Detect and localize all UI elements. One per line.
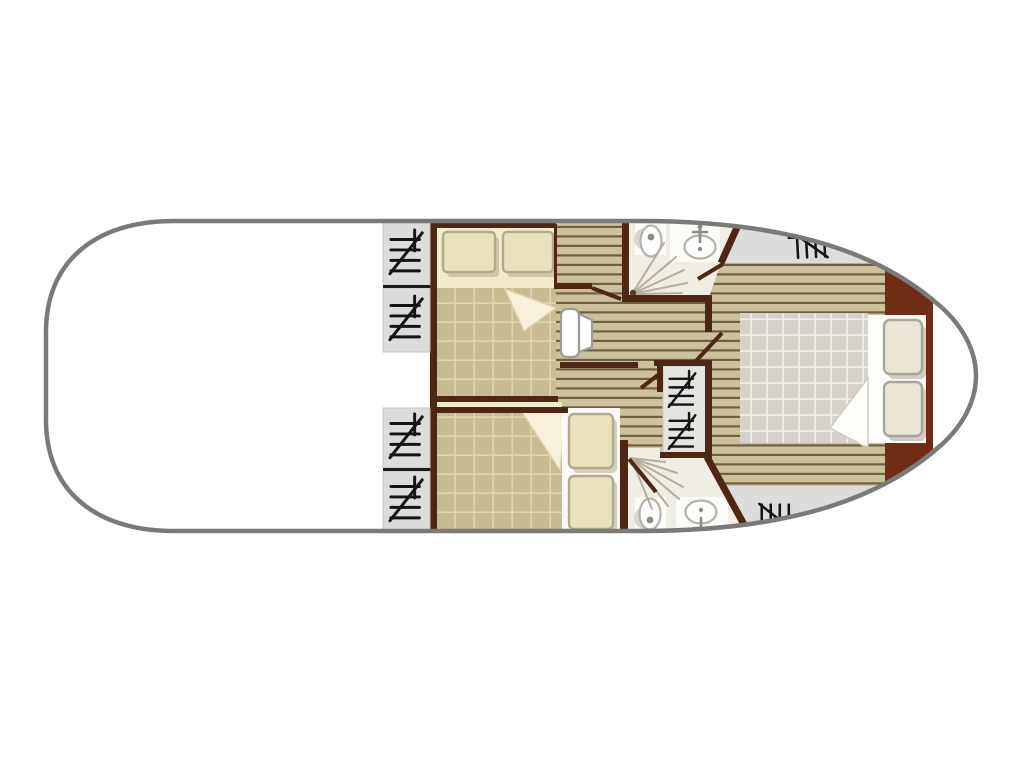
- pillow: [569, 414, 613, 468]
- wall-cabin-left: [430, 221, 437, 531]
- wall: [654, 452, 712, 459]
- bow-tip: [933, 221, 995, 531]
- wall: [430, 396, 558, 402]
- wall: [622, 221, 629, 302]
- divider: [383, 468, 430, 471]
- wall: [620, 440, 628, 531]
- pillow: [503, 232, 553, 272]
- floor-plan-canvas: [0, 0, 1024, 768]
- cabin-bottom: [430, 396, 620, 534]
- wall: [705, 362, 712, 459]
- wall: [430, 407, 568, 413]
- wall: [657, 366, 663, 392]
- pillow: [443, 232, 495, 272]
- wall: [622, 295, 712, 302]
- wall: [705, 296, 712, 332]
- boat-floor-plan: [0, 0, 1024, 768]
- wall: [560, 362, 638, 368]
- pillow: [569, 476, 613, 529]
- pillow: [884, 320, 922, 374]
- wall: [654, 360, 712, 366]
- wall-thin: [554, 224, 557, 286]
- pillow: [884, 382, 922, 436]
- divider: [383, 285, 430, 288]
- wall: [554, 283, 592, 289]
